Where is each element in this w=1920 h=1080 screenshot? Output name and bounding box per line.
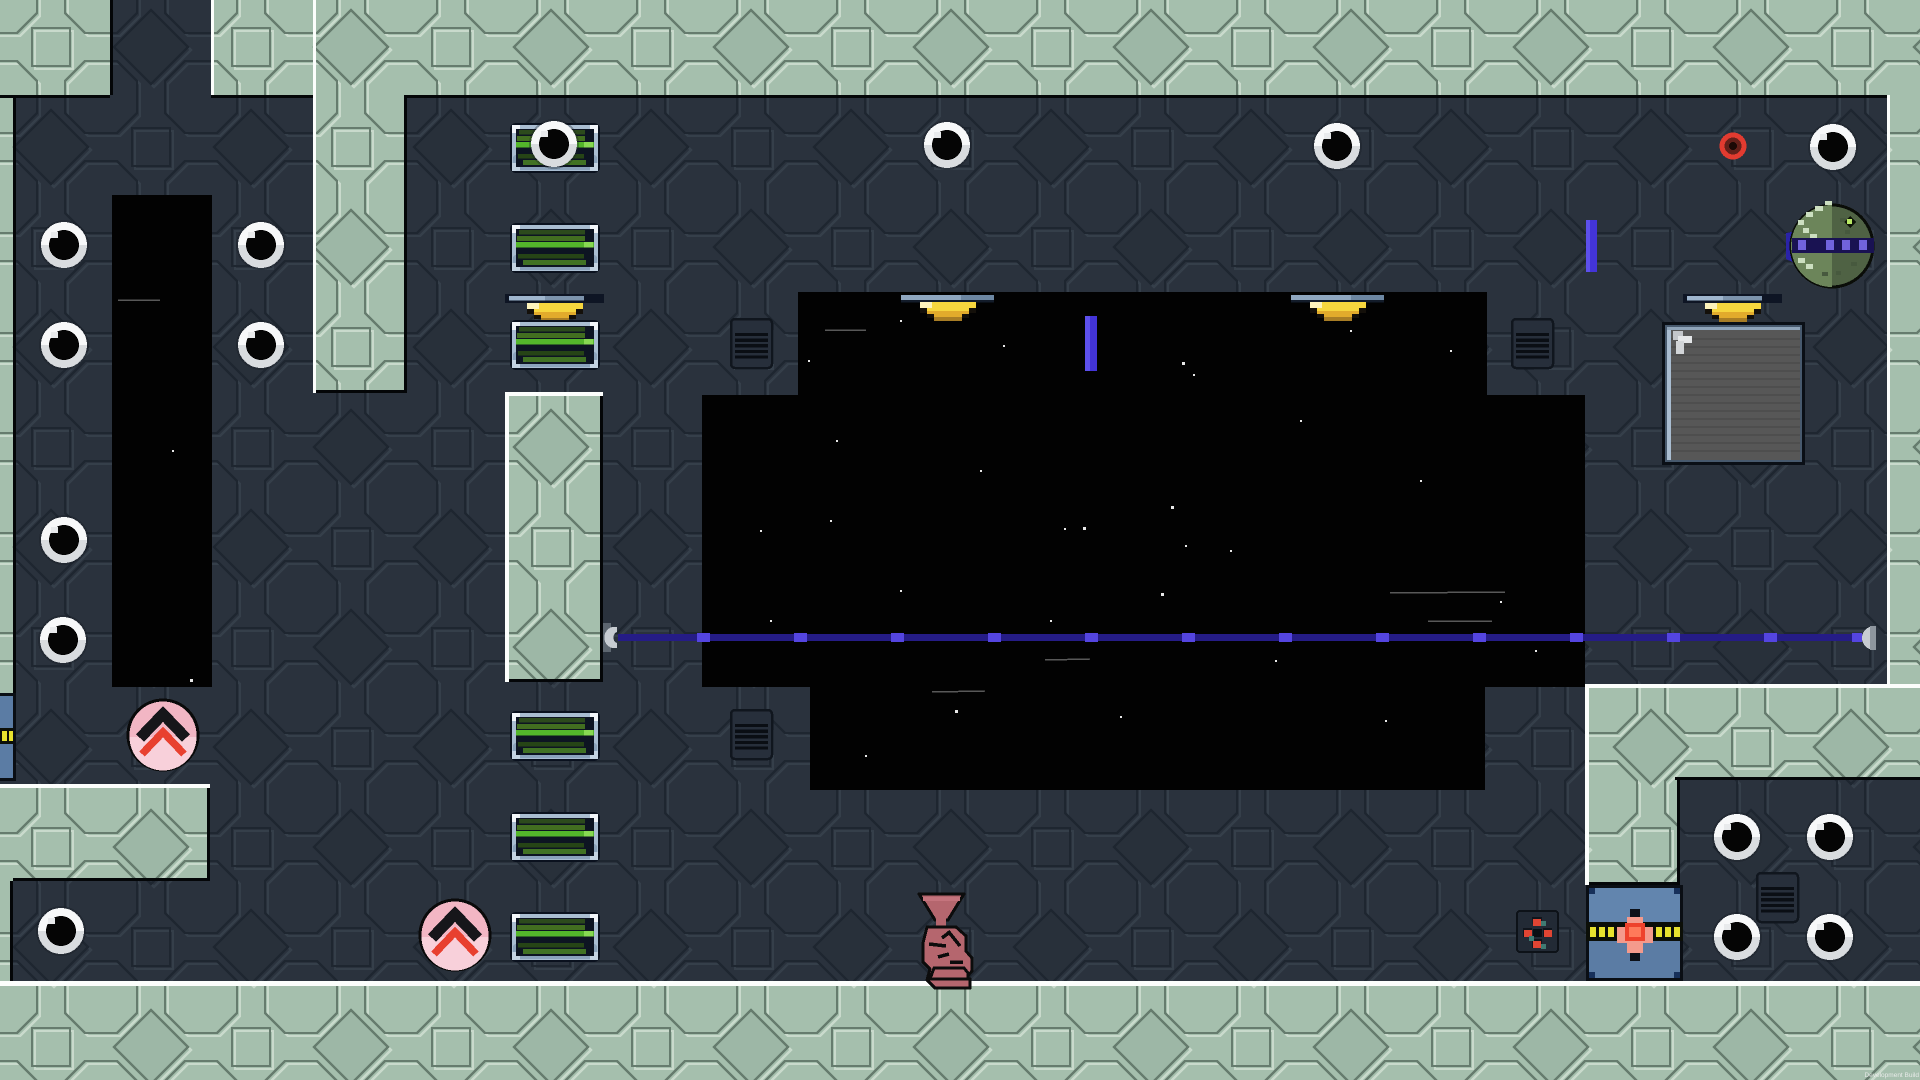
svg-text:Development Build: Development Build: [1864, 1072, 1919, 1079]
